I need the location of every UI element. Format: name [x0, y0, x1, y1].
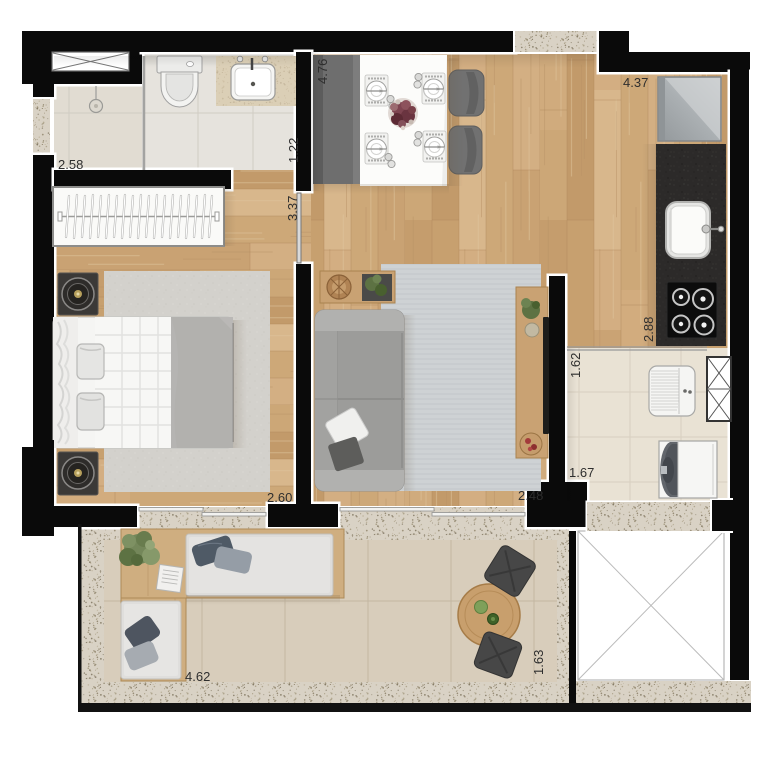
svg-text:1.22: 1.22 [286, 138, 301, 163]
svg-text:2.58: 2.58 [58, 157, 83, 172]
svg-text:4.37: 4.37 [623, 75, 648, 90]
svg-text:2.60: 2.60 [267, 490, 292, 505]
svg-text:1.63: 1.63 [531, 650, 546, 675]
svg-text:4.76: 4.76 [315, 59, 330, 84]
svg-text:1.62: 1.62 [568, 353, 583, 378]
svg-text:4.62: 4.62 [185, 669, 210, 684]
svg-text:1.67: 1.67 [569, 465, 594, 480]
svg-text:3.37: 3.37 [285, 196, 300, 221]
svg-text:2.48: 2.48 [518, 488, 543, 503]
svg-text:2.88: 2.88 [641, 317, 656, 342]
